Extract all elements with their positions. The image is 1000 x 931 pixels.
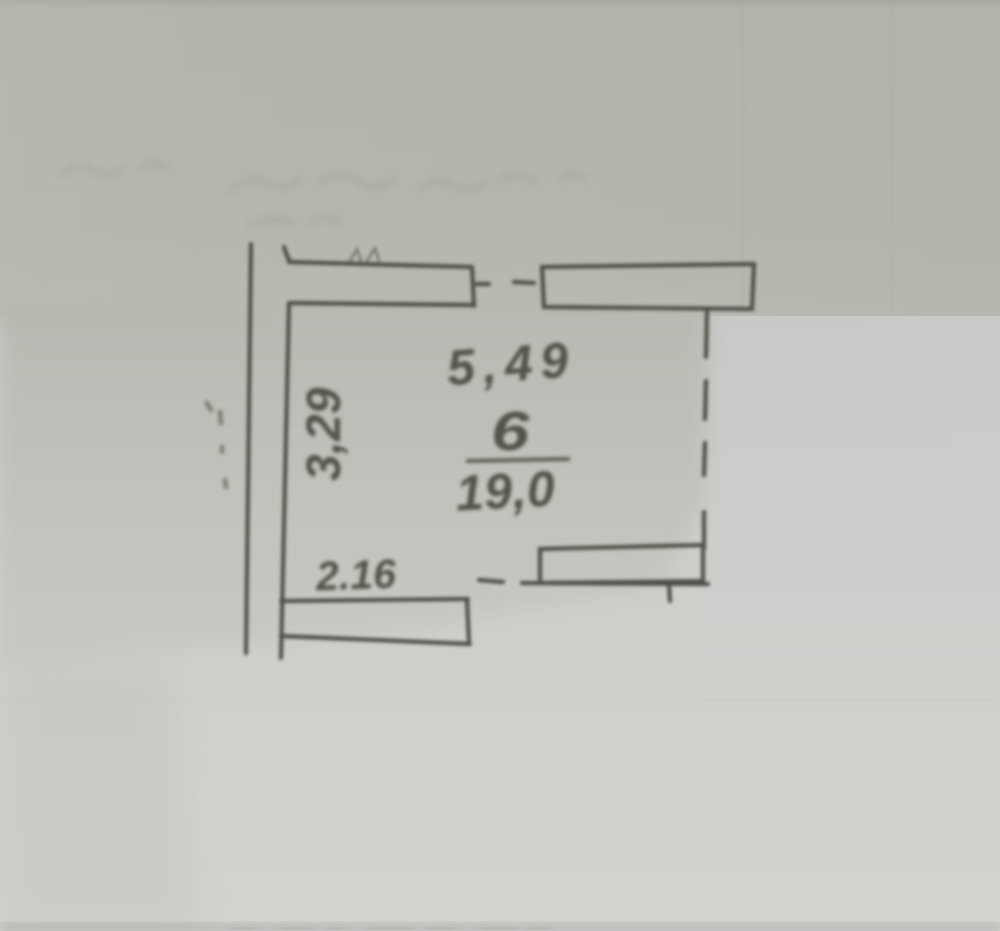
svg-text:2.16: 2.16 bbox=[314, 551, 398, 600]
svg-text:5,49: 5,49 bbox=[445, 331, 578, 396]
svg-text:6: 6 bbox=[491, 401, 530, 462]
svg-text:3,29: 3,29 bbox=[298, 387, 351, 481]
svg-text:19,0: 19,0 bbox=[454, 461, 556, 522]
